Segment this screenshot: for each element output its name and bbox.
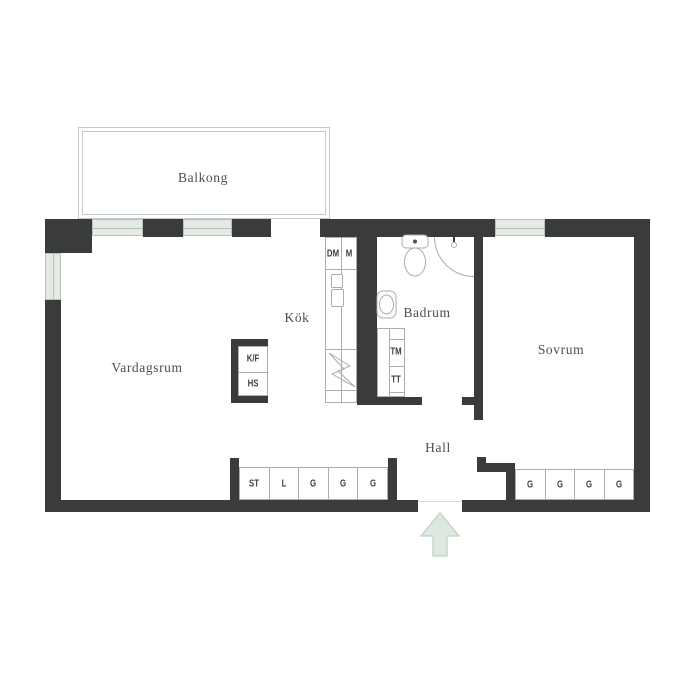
wall-top-segment-1 bbox=[143, 219, 183, 237]
closet-cell: G bbox=[328, 468, 358, 499]
wall-top-left-corner bbox=[45, 219, 92, 253]
closet-row-right: G G G G bbox=[515, 469, 634, 500]
machine-label: M bbox=[346, 249, 353, 260]
bathroom-label: Badrum bbox=[403, 305, 450, 321]
wall-top-segment-2 bbox=[232, 219, 271, 237]
closet-cell: G bbox=[298, 468, 328, 499]
wall-hall-l-vertical bbox=[506, 472, 515, 500]
wall-left bbox=[45, 300, 61, 500]
closet-cell: G bbox=[357, 468, 387, 499]
closet-label: L bbox=[282, 478, 287, 489]
window-top-1 bbox=[92, 219, 143, 236]
wall-hall-l-horizontal bbox=[477, 463, 515, 472]
entrance-arrow-icon bbox=[418, 512, 462, 558]
kitchen-label: Kök bbox=[284, 310, 309, 326]
closet-label: G bbox=[557, 479, 563, 490]
laundry-line-2 bbox=[389, 366, 404, 367]
counter-line-1 bbox=[326, 269, 356, 270]
laundry-line-3 bbox=[389, 392, 404, 393]
closet-cell: G bbox=[545, 470, 575, 499]
closet-row-left: ST L G G G bbox=[239, 467, 388, 500]
wall-right bbox=[634, 219, 650, 511]
entrance-threshold bbox=[418, 501, 462, 502]
laundry-line-1 bbox=[389, 339, 404, 340]
laundry-unit bbox=[377, 328, 405, 397]
closet-label: G bbox=[310, 478, 316, 489]
wall-bottom-left bbox=[45, 500, 418, 512]
balcony-label: Balkong bbox=[178, 170, 228, 186]
window-left-1 bbox=[45, 253, 61, 300]
fridge-freezer-label: K/F bbox=[247, 354, 260, 365]
window-top-2 bbox=[183, 219, 232, 236]
hall-label: Hall bbox=[425, 440, 451, 456]
closet-label: G bbox=[586, 479, 592, 490]
closet-label: G bbox=[370, 478, 376, 489]
wall-fridge-bracket-bottom bbox=[231, 396, 268, 403]
wall-fridge-bracket-left bbox=[231, 339, 238, 403]
wall-bedroom bbox=[474, 237, 483, 420]
fridge-cabinet-divider bbox=[239, 372, 267, 373]
shower-head-icon bbox=[449, 237, 459, 249]
closet-cell: G bbox=[516, 470, 545, 499]
wall-bottom-right bbox=[462, 500, 650, 512]
counter-line-3 bbox=[326, 390, 356, 391]
washbasin-icon bbox=[372, 289, 398, 321]
kitchen-counter bbox=[325, 237, 357, 403]
kitchen-sink-tap bbox=[331, 274, 343, 288]
living-room-label: Vardagsrum bbox=[111, 360, 182, 376]
washing-machine-label: TM bbox=[390, 347, 401, 358]
closet-label: G bbox=[527, 479, 533, 490]
wall-kitchen-bathroom-divider bbox=[357, 237, 377, 405]
stove-icon bbox=[327, 351, 357, 389]
bedroom-label: Sovrum bbox=[538, 342, 584, 358]
kitchen-sink-basin bbox=[331, 289, 344, 307]
closet-cell: G bbox=[604, 470, 634, 499]
tall-cabinet-label: HS bbox=[248, 379, 259, 390]
closet-cell: ST bbox=[240, 468, 269, 499]
closet-label: G bbox=[616, 479, 622, 490]
counter-line-2 bbox=[326, 349, 356, 350]
toilet-icon bbox=[400, 233, 430, 280]
wall-closet-post-left bbox=[230, 458, 239, 500]
window-top-3 bbox=[495, 219, 545, 236]
wall-bathroom-bottom bbox=[377, 397, 422, 405]
tumble-dryer-label: TT bbox=[391, 375, 401, 386]
closet-cell: G bbox=[574, 470, 604, 499]
closet-label: G bbox=[340, 478, 346, 489]
closet-cell: L bbox=[269, 468, 299, 499]
dishwasher-label: DM bbox=[327, 249, 339, 260]
wall-closet-post-right bbox=[388, 458, 397, 500]
closet-label: ST bbox=[249, 478, 259, 489]
floor-plan: Balkong DM M K/F HS bbox=[0, 0, 683, 683]
